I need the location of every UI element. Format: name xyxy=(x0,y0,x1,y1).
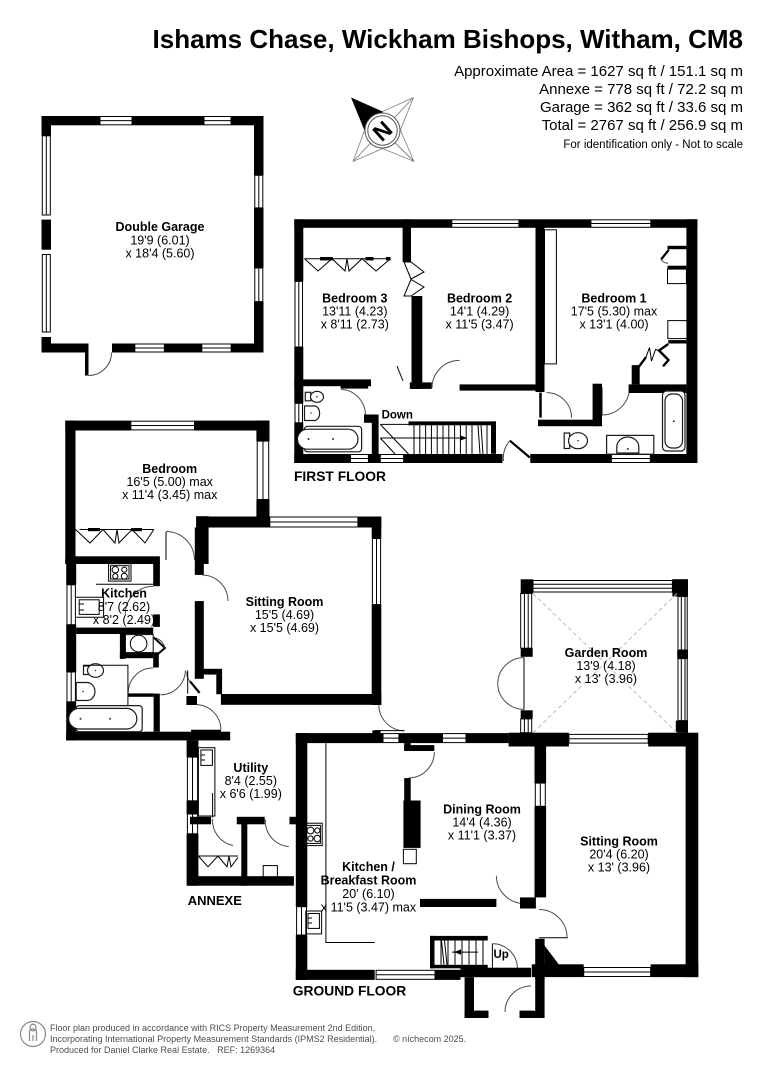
svg-text:Produced for Daniel Clarke Rea: Produced for Daniel Clarke Real Estate. … xyxy=(50,1045,275,1055)
svg-text:8'7 (2.62): 8'7 (2.62) xyxy=(98,600,150,614)
svg-text:Bedroom: Bedroom xyxy=(142,462,197,476)
svg-text:Floor plan produced in accorda: Floor plan produced in accordance with R… xyxy=(50,1023,375,1033)
svg-text:Annexe = 778 sq ft / 72.2 sq m: Annexe = 778 sq ft / 72.2 sq m xyxy=(539,81,743,98)
svg-text:x 11'5 (3.47): x 11'5 (3.47) xyxy=(446,318,514,332)
svg-text:8'4 (2.55): 8'4 (2.55) xyxy=(225,774,277,788)
svg-text:x 11'4 (3.45) max: x 11'4 (3.45) max xyxy=(122,488,218,502)
svg-text:ANNEXE: ANNEXE xyxy=(188,893,243,908)
svg-text:20'4 (6.20): 20'4 (6.20) xyxy=(589,848,648,862)
svg-text:Bedroom 1: Bedroom 1 xyxy=(581,292,646,306)
svg-text:x 13' (3.96): x 13' (3.96) xyxy=(588,861,650,875)
svg-text:x 13' (3.96): x 13' (3.96) xyxy=(575,672,637,686)
svg-text:Total = 2767 sq ft / 256.9 sq: Total = 2767 sq ft / 256.9 sq m xyxy=(542,117,743,134)
svg-text:Garage = 362 sq ft / 33.6 sq m: Garage = 362 sq ft / 33.6 sq m xyxy=(540,99,743,116)
svg-text:Sitting Room: Sitting Room xyxy=(246,595,324,609)
svg-text:Sitting Room: Sitting Room xyxy=(580,835,658,849)
svg-text:Bedroom 3: Bedroom 3 xyxy=(322,292,387,306)
svg-text:x 11'5 (3.47) max: x 11'5 (3.47) max xyxy=(321,901,417,915)
svg-text:Bedroom 2: Bedroom 2 xyxy=(447,292,512,306)
svg-text:Utility: Utility xyxy=(233,761,268,775)
svg-text:For identification only - Not: For identification only - Not to scale xyxy=(563,139,743,151)
svg-text:17'5 (5.30) max: 17'5 (5.30) max xyxy=(571,305,658,319)
svg-text:x 11'1 (3.37): x 11'1 (3.37) xyxy=(448,829,516,843)
svg-text:Double Garage: Double Garage xyxy=(116,220,205,234)
svg-text:Approximate Area = 1627 sq ft: Approximate Area = 1627 sq ft / 151.1 sq… xyxy=(454,63,743,80)
svg-text:Breakfast Room: Breakfast Room xyxy=(321,874,417,888)
svg-text:Ishams Chase, Wickham Bishops,: Ishams Chase, Wickham Bishops, Witham, C… xyxy=(153,24,743,54)
svg-text:Kitchen /: Kitchen / xyxy=(342,860,395,874)
svg-text:Down: Down xyxy=(382,410,413,422)
svg-text:14'4 (4.36): 14'4 (4.36) xyxy=(452,816,511,830)
svg-text:16'5 (5.00) max: 16'5 (5.00) max xyxy=(126,475,213,489)
svg-text:x 18'4 (5.60): x 18'4 (5.60) xyxy=(125,247,194,261)
svg-text:Kitchen: Kitchen xyxy=(101,587,147,601)
svg-text:Dining Room: Dining Room xyxy=(443,803,521,817)
svg-text:© níchecom 2025.: © níchecom 2025. xyxy=(393,1034,466,1044)
svg-text:GROUND FLOOR: GROUND FLOOR xyxy=(293,984,406,999)
svg-text:19'9 (6.01): 19'9 (6.01) xyxy=(130,234,189,248)
svg-text:Garden Room: Garden Room xyxy=(565,646,648,660)
svg-text:x 15'5 (4.69): x 15'5 (4.69) xyxy=(250,621,319,635)
svg-text:Up: Up xyxy=(494,949,509,961)
svg-text:x 13'1 (4.00): x 13'1 (4.00) xyxy=(579,318,648,332)
svg-text:14'1 (4.29): 14'1 (4.29) xyxy=(450,305,509,319)
svg-text:13'9 (4.18): 13'9 (4.18) xyxy=(576,659,635,673)
svg-text:x 6'6 (1.99): x 6'6 (1.99) xyxy=(220,787,282,801)
svg-text:15'5 (4.69): 15'5 (4.69) xyxy=(255,608,314,622)
svg-text:x 8'2 (2.49): x 8'2 (2.49) xyxy=(93,613,155,627)
svg-text:20' (6.10): 20' (6.10) xyxy=(342,887,394,901)
svg-text:Incorporating International Pr: Incorporating International Property Mea… xyxy=(50,1034,377,1044)
svg-text:x 8'11 (2.73): x 8'11 (2.73) xyxy=(321,318,389,332)
svg-text:FIRST FLOOR: FIRST FLOOR xyxy=(294,469,386,484)
svg-text:13'11 (4.23): 13'11 (4.23) xyxy=(322,305,387,319)
